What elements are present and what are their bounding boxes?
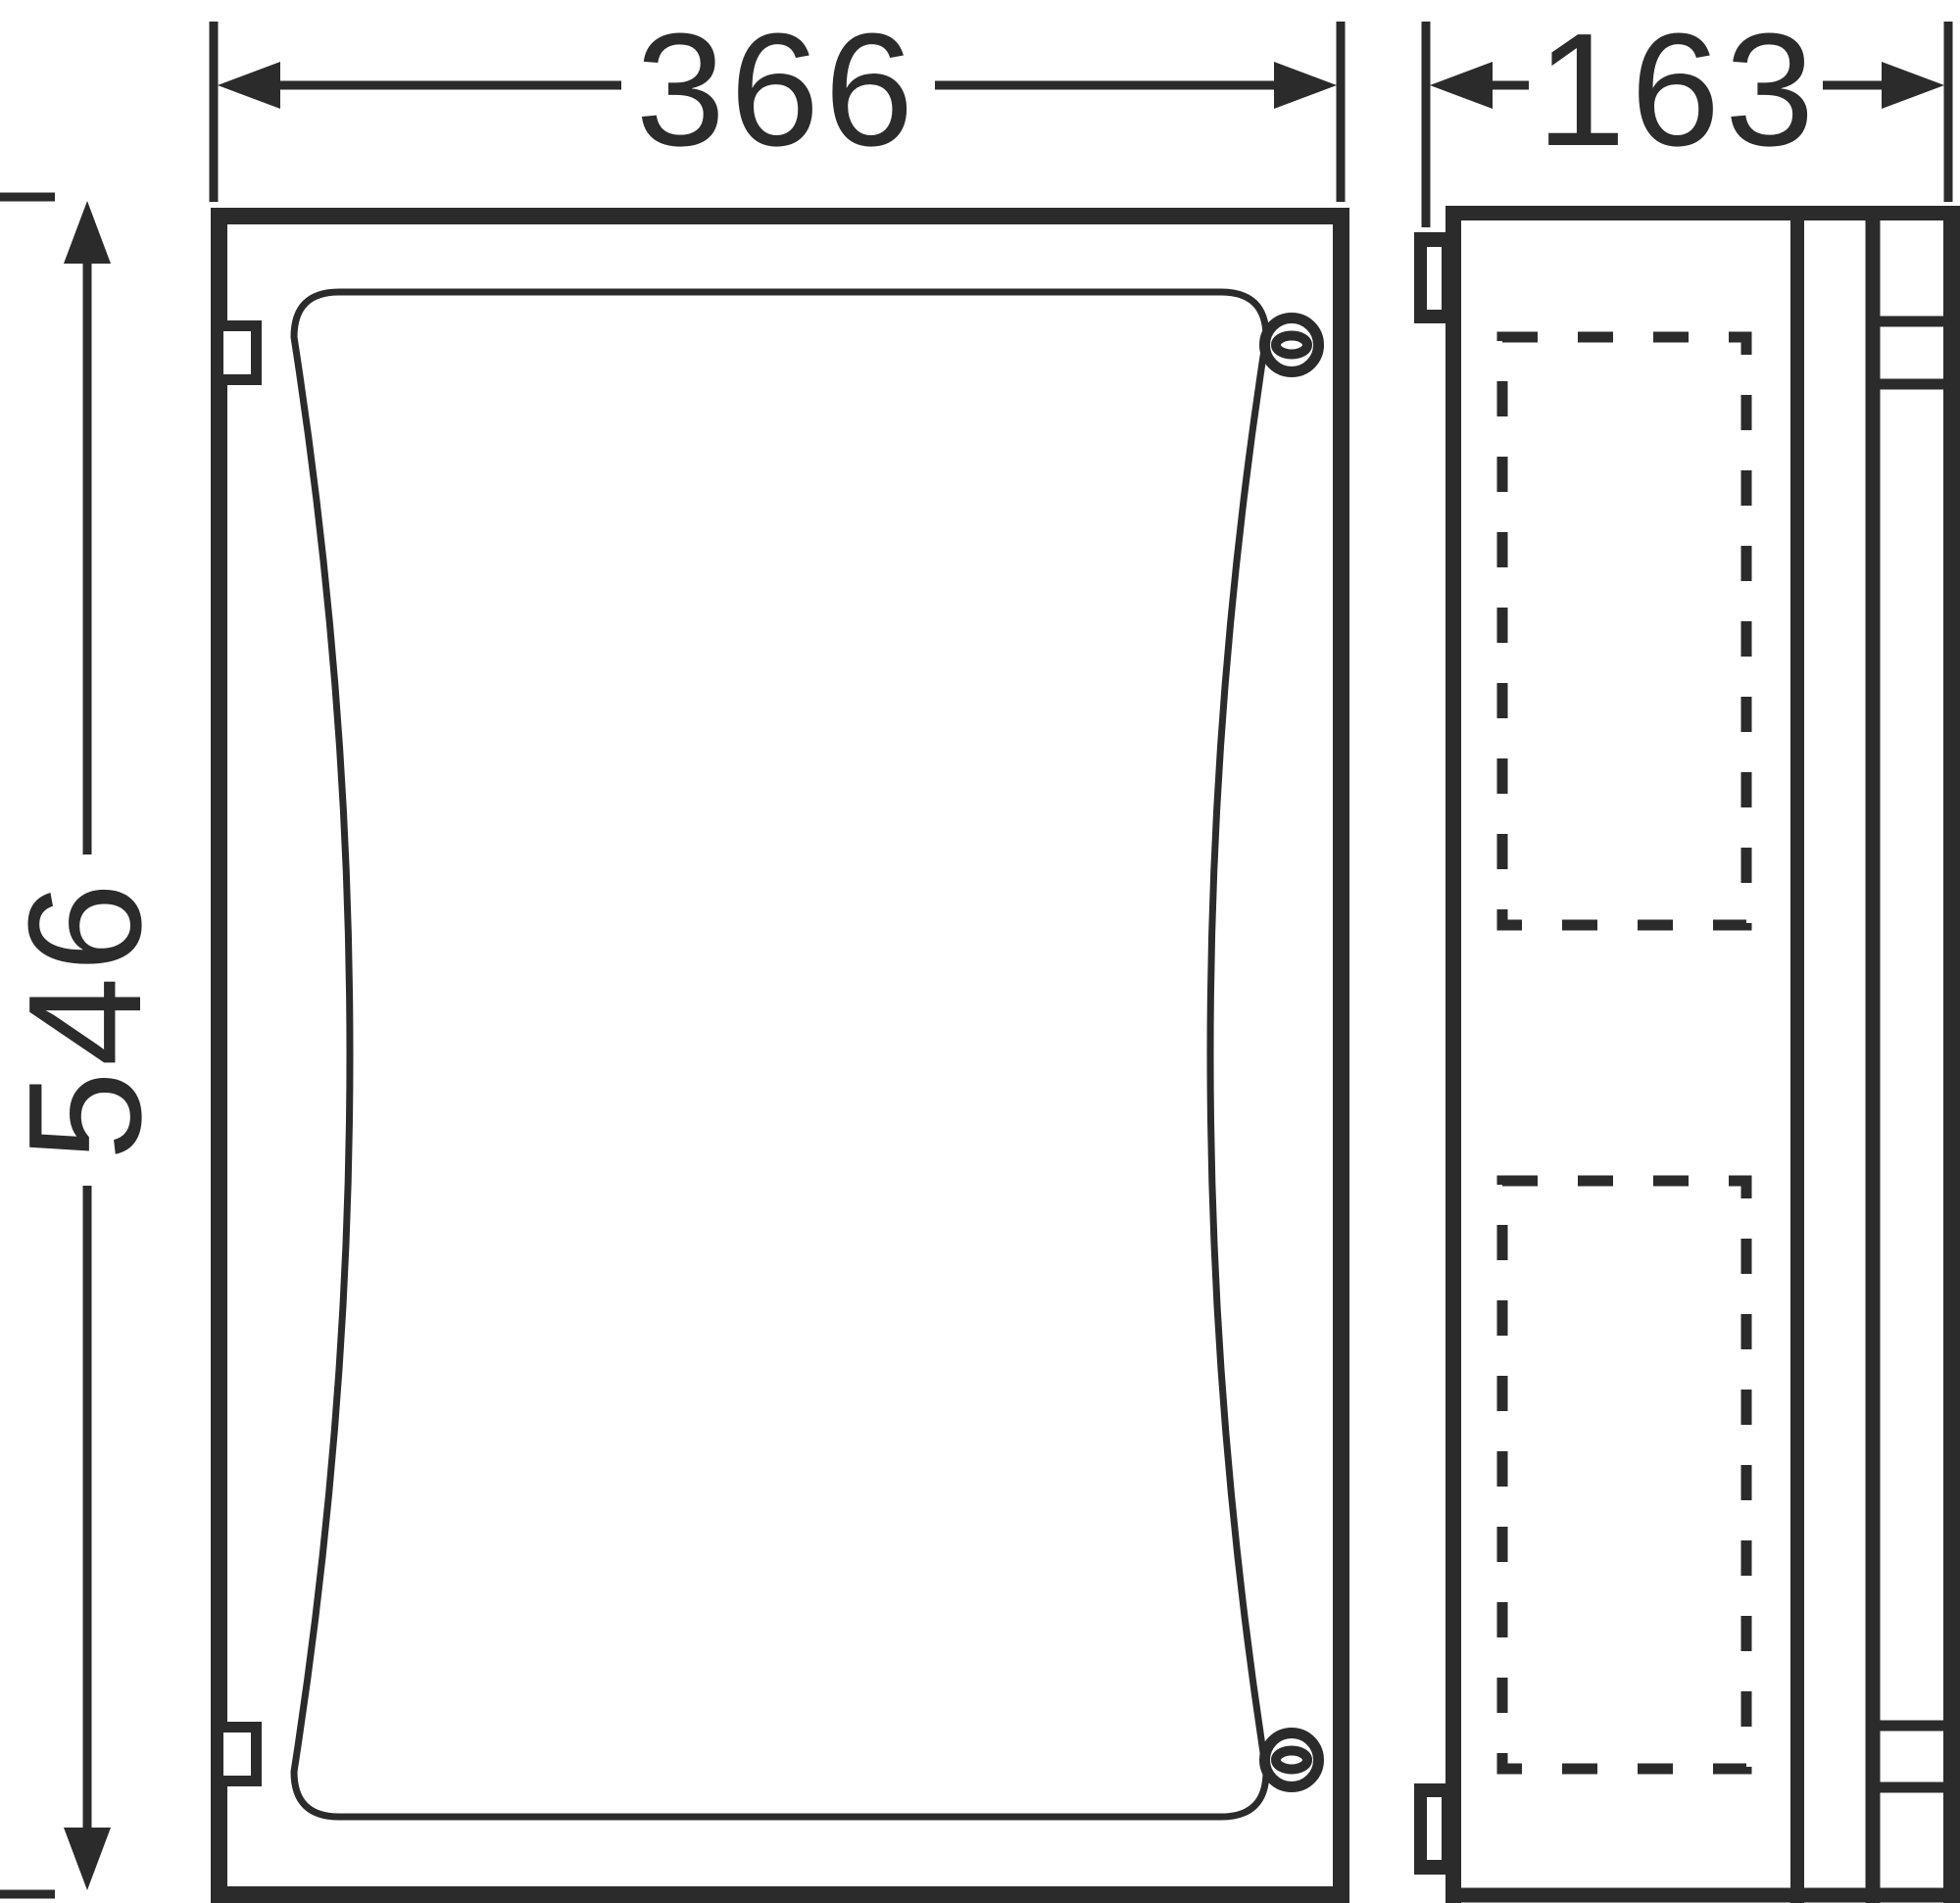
- front-height-label: 546: [0, 878, 174, 1161]
- arrowhead-down-icon: [64, 1828, 111, 1890]
- lock-top-icon: [1265, 318, 1319, 372]
- lock-bottom-icon: [1265, 1733, 1319, 1787]
- dimension-front-width: 366: [214, 0, 1341, 202]
- hinge-top-icon: [219, 326, 257, 380]
- side-depth-label: 163: [1537, 0, 1820, 179]
- front-view: [219, 217, 1342, 1895]
- drawing-canvas: 366 163 546: [0, 0, 1960, 1903]
- arrowhead-left-icon: [218, 62, 280, 109]
- arrowhead-right-icon: [1274, 62, 1337, 109]
- arrowhead-left-icon: [1430, 62, 1493, 109]
- knockout-zone-upper: [1502, 337, 1746, 925]
- arrowhead-right-icon: [1882, 62, 1944, 109]
- side-door-front-face: [1943, 206, 1960, 1903]
- knockout-zone-lower: [1502, 1181, 1746, 1769]
- front-door-outline: [294, 292, 1266, 1817]
- dimension-front-height: 546: [0, 197, 174, 1894]
- front-width-label: 366: [636, 0, 919, 179]
- side-view: [1414, 206, 1960, 1903]
- hinge-bottom-icon: [219, 1728, 257, 1781]
- arrowhead-up-icon: [64, 201, 111, 264]
- drawing-sheet: 366 163 546: [0, 0, 1960, 1903]
- dimension-side-depth: 163: [1426, 0, 1948, 227]
